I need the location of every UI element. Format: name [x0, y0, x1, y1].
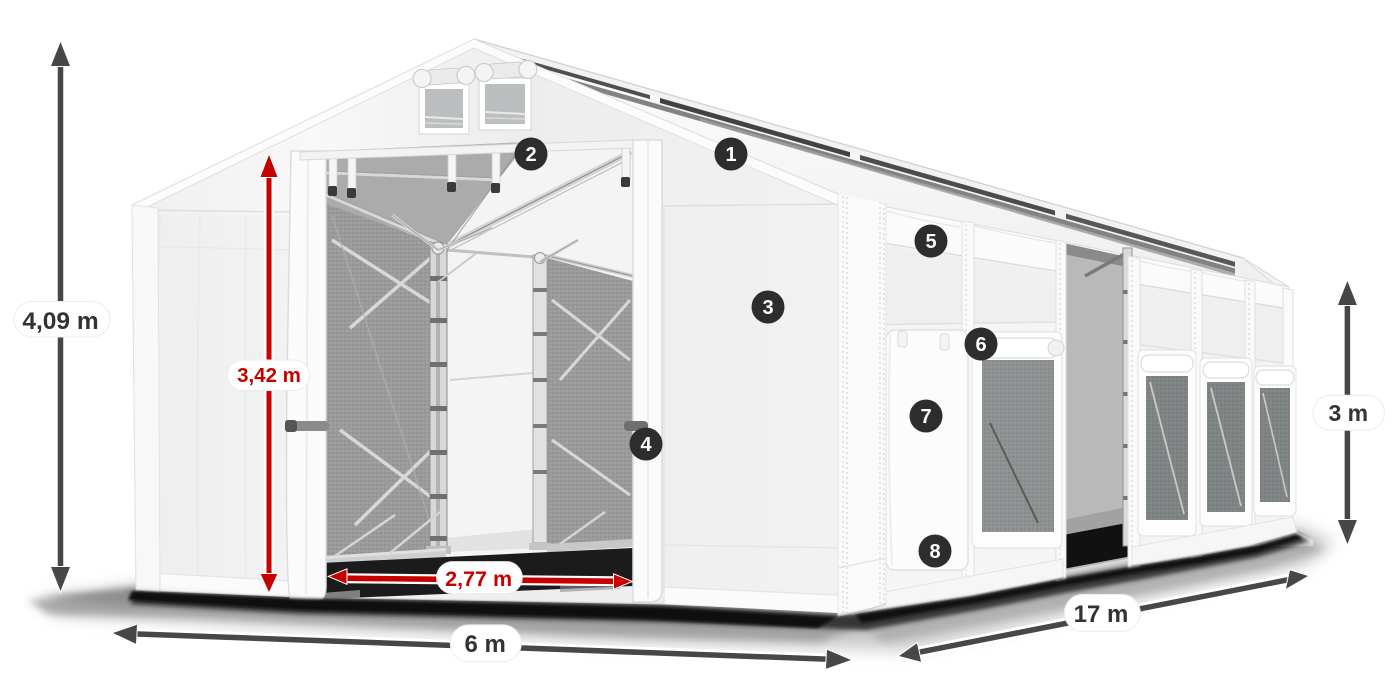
svg-text:7: 7 — [920, 406, 931, 428]
svg-text:3 m: 3 m — [1328, 400, 1368, 426]
svg-text:4: 4 — [640, 434, 652, 456]
svg-text:3,42 m: 3,42 m — [237, 364, 301, 387]
svg-text:6 m: 6 m — [465, 631, 506, 658]
svg-text:5: 5 — [925, 231, 936, 253]
svg-text:8: 8 — [929, 541, 940, 563]
svg-text:1: 1 — [725, 144, 736, 166]
svg-text:4,09 m: 4,09 m — [22, 308, 98, 335]
svg-text:3: 3 — [762, 297, 773, 319]
svg-text:17 m: 17 m — [1074, 601, 1129, 628]
svg-text:2: 2 — [525, 144, 536, 166]
svg-text:6: 6 — [975, 334, 986, 356]
svg-text:2,77 m: 2,77 m — [445, 567, 512, 591]
